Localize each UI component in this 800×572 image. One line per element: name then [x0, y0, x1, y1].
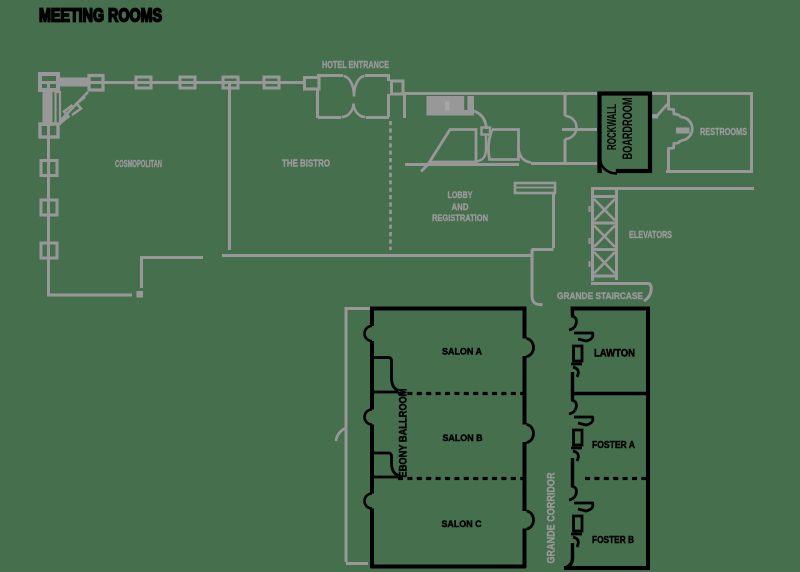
svg-text:MEETING ROOMS: MEETING ROOMS: [39, 6, 162, 26]
svg-text:SALON B: SALON B: [443, 433, 483, 444]
svg-text:SALON A: SALON A: [442, 347, 482, 358]
svg-text:SALON C: SALON C: [442, 519, 482, 530]
svg-text:COSMOPOLITAN: COSMOPOLITAN: [115, 159, 162, 170]
svg-text:RESTROOMS: RESTROOMS: [700, 127, 747, 138]
svg-text:ELEVATORS: ELEVATORS: [629, 230, 672, 241]
svg-text:LOBBY: LOBBY: [448, 190, 473, 201]
svg-text:LAWTON: LAWTON: [594, 348, 635, 360]
svg-text:BOARDROOM: BOARDROOM: [619, 98, 635, 160]
svg-text:ROCKWALL: ROCKWALL: [604, 104, 619, 150]
svg-text:HOTEL ENTRANCE: HOTEL ENTRANCE: [322, 60, 389, 71]
svg-text:FOSTER A: FOSTER A: [592, 440, 635, 451]
svg-text:EBONY BALLROOM: EBONY BALLROOM: [398, 389, 410, 478]
svg-text:GRANDE STAIRCASE: GRANDE STAIRCASE: [557, 291, 643, 302]
svg-text:THE BISTRO: THE BISTRO: [282, 159, 330, 170]
svg-text:GRANDE CORRIDOR: GRANDE CORRIDOR: [546, 472, 558, 563]
svg-text:AND: AND: [452, 202, 469, 213]
svg-text:FOSTER B: FOSTER B: [592, 535, 634, 546]
svg-text:REGISTRATION: REGISTRATION: [432, 213, 488, 224]
